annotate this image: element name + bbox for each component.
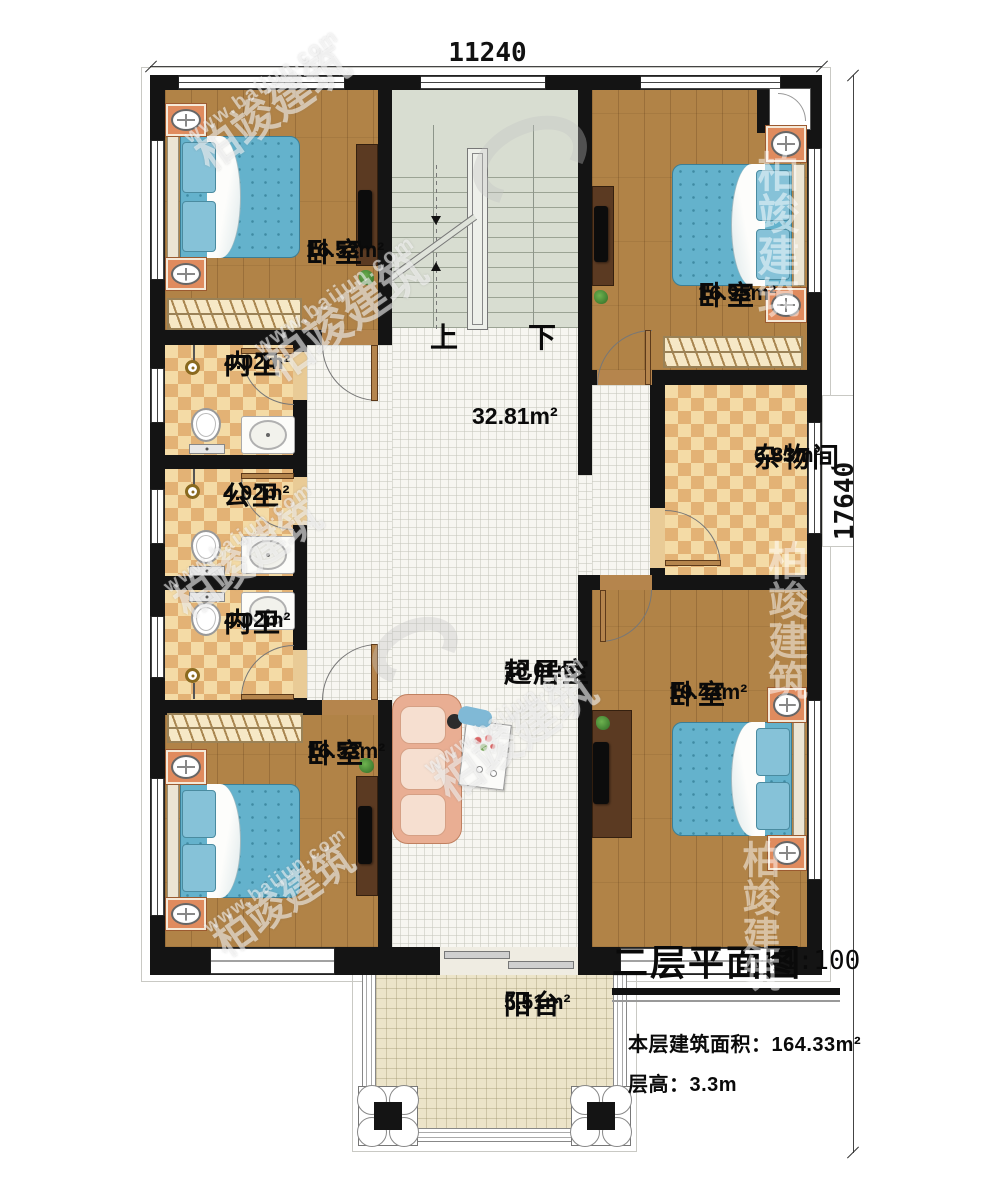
plant-icon [596, 716, 610, 730]
pillow [756, 728, 791, 776]
plant-icon [359, 270, 374, 285]
room-area: 16.53m² [307, 741, 385, 763]
door-leaf [241, 473, 294, 479]
flowers-icon [466, 728, 501, 760]
lamp-icon [773, 841, 801, 865]
window [178, 75, 345, 90]
wall [578, 385, 592, 475]
toilet-bowl [191, 602, 221, 636]
floor-plan: 卧室 16.53m² 卧室 16.95m² 内卫 4.02m² 公卫 4.02m… [0, 0, 1000, 1188]
sofa-cushion [400, 794, 446, 836]
wall [165, 455, 293, 469]
dimension-line-right [853, 75, 854, 1153]
room-area: 16.95m² [698, 283, 776, 305]
room-area: 4.02m² [224, 610, 291, 632]
tv-icon [593, 742, 609, 804]
lamp-icon [771, 131, 801, 157]
pillow [182, 844, 217, 892]
pendant-light-icon [185, 668, 200, 683]
tv-icon [594, 206, 608, 262]
toilet-tank [189, 592, 225, 602]
room-area: 32.81m² [472, 404, 558, 428]
hall-floor-left [307, 345, 392, 700]
bed [672, 164, 805, 286]
door-leaf [645, 330, 651, 385]
plan-title: 二层平面图 [612, 934, 802, 986]
flue-curve [778, 93, 806, 121]
wardrobe [663, 336, 803, 368]
pendant-cord [193, 345, 195, 361]
nightstand [768, 836, 806, 870]
room-area: 16.53m² [306, 240, 384, 262]
toilet-bowl [191, 408, 221, 442]
post-core [587, 1102, 615, 1130]
window [150, 616, 165, 678]
room-area: 6.83m² [754, 445, 821, 467]
plan-scale: 1:100 [782, 946, 860, 976]
tv-icon [358, 806, 372, 864]
lamp-icon [171, 755, 201, 779]
dimension-label-top: 11240 [440, 38, 535, 68]
door-opening [322, 700, 378, 715]
pendant-light-icon [185, 484, 200, 499]
pillow [182, 790, 217, 838]
window [150, 489, 165, 544]
stairs-up-label: 上 [430, 316, 458, 356]
cup-icon [476, 766, 483, 773]
wall [165, 576, 293, 590]
window [150, 368, 165, 423]
window [210, 947, 335, 975]
window [640, 75, 781, 90]
pendant-light-icon [185, 360, 200, 375]
pendant-cord [193, 469, 195, 485]
cup-icon [490, 770, 497, 777]
hall-floor-passage [578, 475, 592, 575]
stair-stringer-left [433, 125, 434, 328]
toilet-tank [189, 444, 225, 454]
wall [578, 575, 592, 947]
bed-headboard [793, 164, 805, 286]
sink-basin [249, 420, 287, 450]
door-opening [293, 352, 307, 400]
hall-floor-right [592, 385, 650, 575]
door-leaf [600, 590, 606, 642]
bed-headboard [793, 722, 805, 836]
pillow [182, 142, 217, 193]
balcony-post [358, 1086, 418, 1146]
door-leaf [371, 345, 378, 401]
door-leaf [241, 694, 294, 700]
bed-headboard [167, 784, 179, 898]
lamp-icon [171, 263, 201, 285]
wardrobe [167, 298, 302, 330]
stair-arrow-down-icon [431, 216, 441, 225]
toilet-bowl [191, 530, 221, 564]
nightstand [768, 688, 806, 722]
lamp-icon [171, 903, 201, 925]
floor-height-text: 层高：3.3m [628, 1068, 737, 1097]
window [420, 75, 546, 90]
bed-headboard [167, 136, 179, 258]
door-opening [293, 477, 307, 525]
lamp-icon [171, 109, 201, 131]
pendant-cord [193, 683, 195, 699]
flue-shaft [769, 88, 811, 130]
pillow [182, 201, 217, 252]
toilet-tank [189, 566, 225, 576]
stair-center-rail [467, 148, 488, 330]
title-rule-thick [612, 988, 840, 995]
room-area: 4.02m² [223, 483, 290, 505]
nightstand [766, 126, 806, 162]
door-opening [322, 330, 378, 345]
window [150, 778, 165, 916]
building-area-text: 本层建筑面积：164.33m² [628, 1028, 861, 1057]
wall [578, 90, 592, 385]
wall [378, 90, 392, 345]
sofa-cushion [400, 706, 446, 744]
sink [241, 416, 295, 454]
window [150, 140, 165, 280]
door-opening [650, 508, 665, 568]
title-rule-thin [612, 1000, 840, 1002]
bed [167, 136, 300, 258]
bed [167, 784, 300, 898]
door-opening [600, 575, 652, 590]
toilet [189, 530, 225, 576]
sink-basin [249, 540, 287, 570]
nightstand [166, 898, 206, 930]
pillow [756, 229, 791, 280]
plant-icon [594, 290, 608, 304]
bed [672, 722, 805, 836]
pillow [756, 170, 791, 221]
stairs-down-label: 下 [528, 316, 556, 356]
room-area: 19.44m² [669, 682, 747, 704]
post-core [374, 1102, 402, 1130]
pillow [756, 782, 791, 830]
nightstand [166, 750, 206, 784]
window [807, 148, 822, 293]
balcony-post [571, 1086, 631, 1146]
stair-arrow-up-icon [431, 262, 441, 271]
window [807, 422, 822, 534]
sofa-cushion [400, 748, 446, 790]
room-area: 18.01m² [504, 660, 582, 682]
window [807, 700, 822, 880]
toilet [189, 592, 225, 638]
nightstand [166, 258, 206, 290]
nightstand [166, 104, 206, 136]
lamp-icon [773, 693, 801, 717]
wardrobe [167, 713, 303, 743]
toilet [189, 408, 225, 454]
sink [241, 536, 295, 574]
room-area: 4.02m² [224, 352, 291, 374]
door-leaf [665, 560, 721, 566]
door-opening [293, 650, 307, 698]
sliding-door-panel [508, 961, 574, 969]
room-area: 5.51m² [504, 992, 571, 1014]
sliding-door-panel [444, 951, 510, 959]
door-leaf [371, 644, 378, 700]
stair-stringer-right [533, 125, 534, 328]
